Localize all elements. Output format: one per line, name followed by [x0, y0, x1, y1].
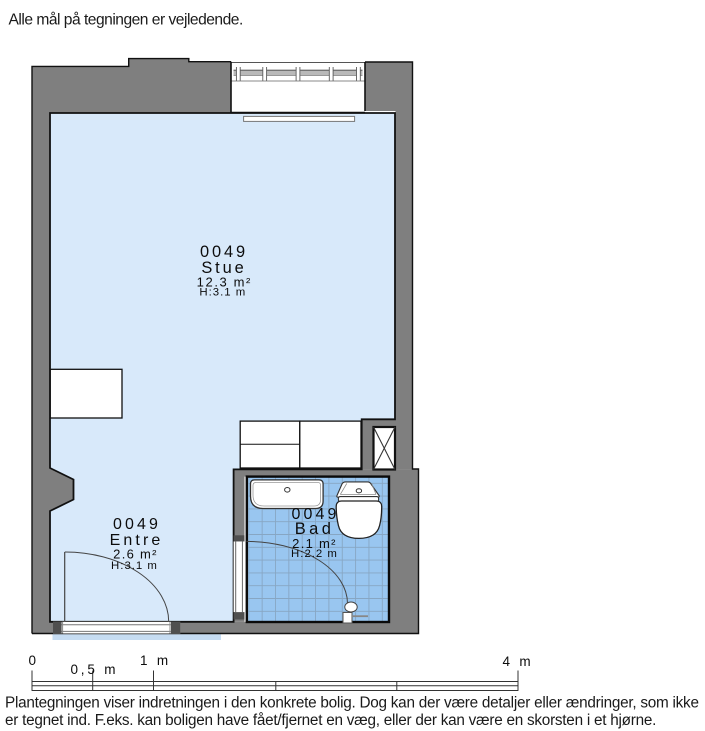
- svg-text:4 m: 4 m: [503, 654, 534, 669]
- svg-text:0049: 0049: [113, 516, 161, 533]
- svg-text:H:3.1 m: H:3.1 m: [199, 287, 246, 299]
- svg-text:er tegnet ind. F.eks. kan boli: er tegnet ind. F.eks. kan boligen have f…: [5, 712, 656, 729]
- svg-text:H:2.2 m: H:2.2 m: [291, 548, 338, 560]
- svg-text:Alle mål på tegningen er vejle: Alle mål på tegningen er vejledende.: [9, 11, 243, 29]
- svg-text:Plantegningen viser indretning: Plantegningen viser indretningen i den k…: [5, 694, 699, 711]
- svg-text:0,5 m: 0,5 m: [71, 662, 119, 677]
- svg-text:0: 0: [29, 653, 39, 668]
- svg-text:1 m: 1 m: [140, 653, 171, 668]
- svg-text:H:3.1 m: H:3.1 m: [111, 560, 158, 572]
